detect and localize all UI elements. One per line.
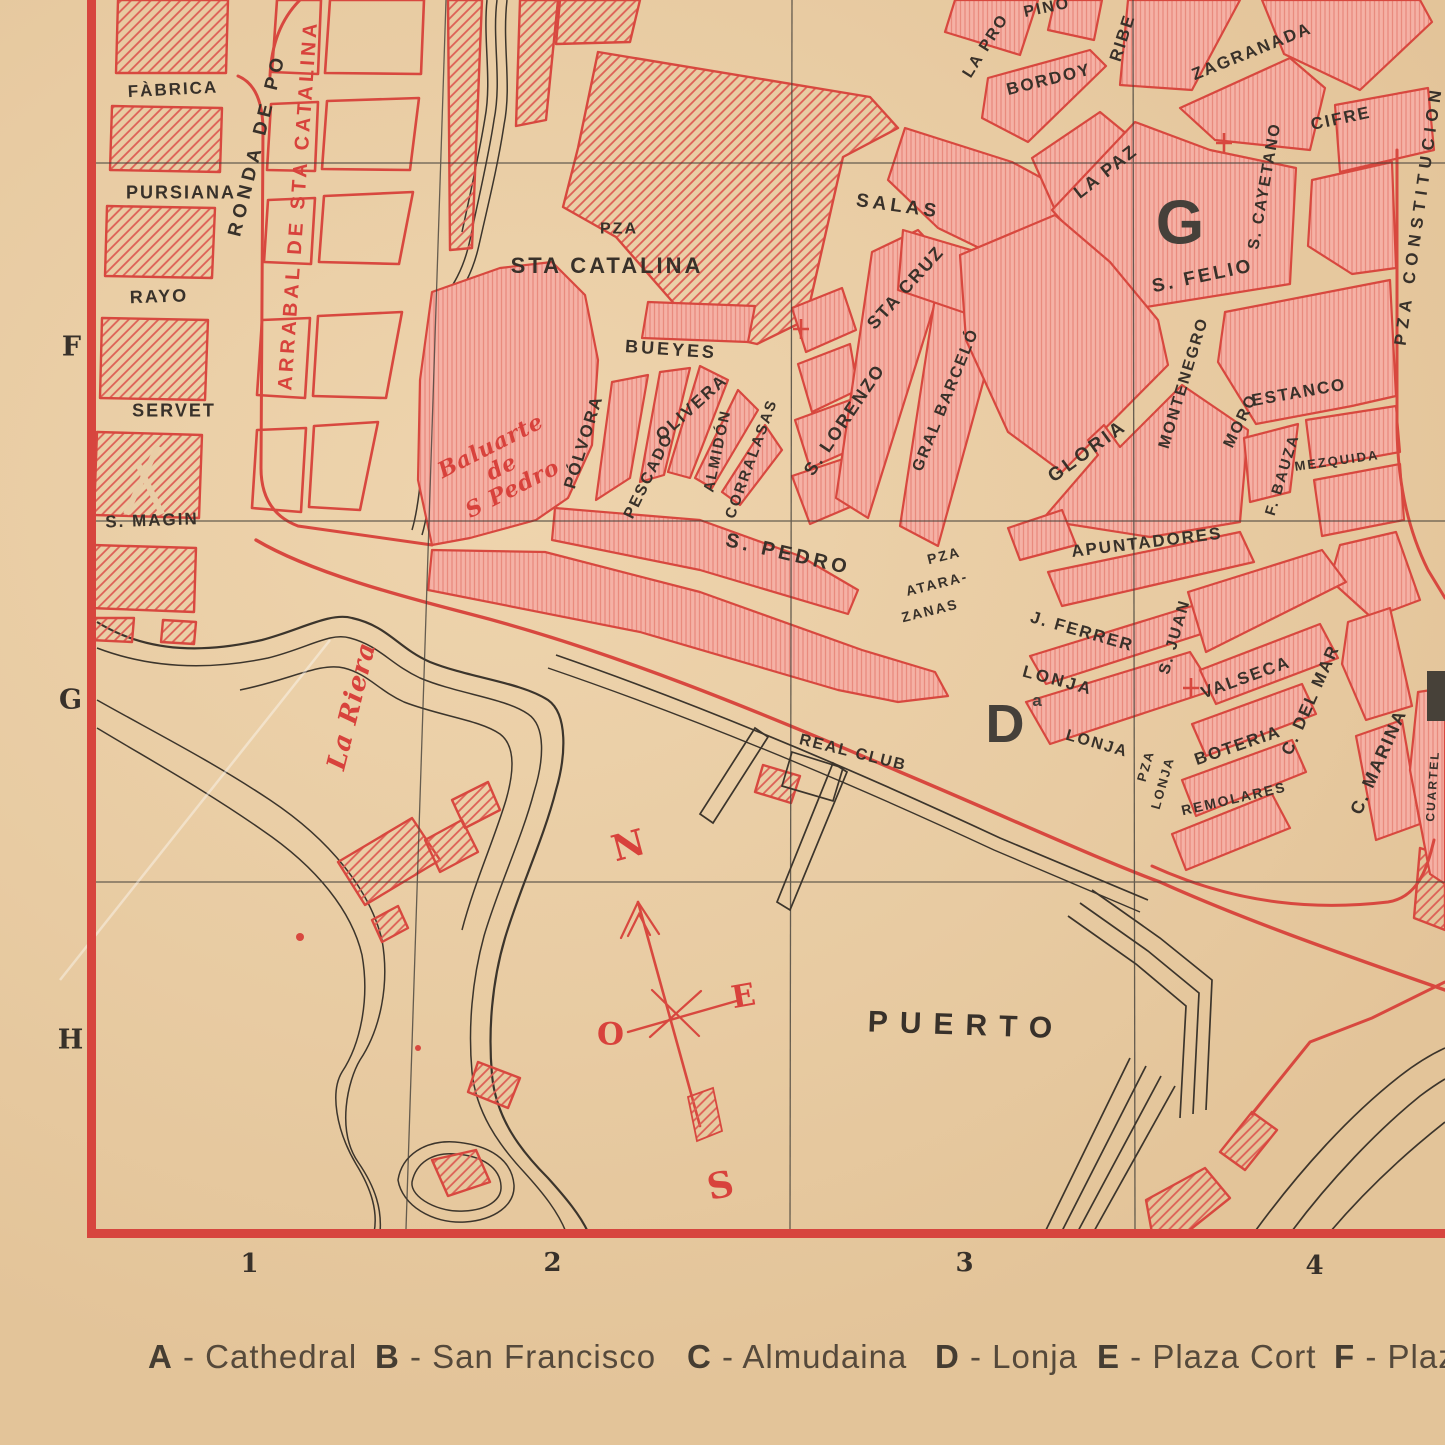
legend-row: A - CathedralB - San FranciscoC - Almuda…	[0, 1338, 1445, 1388]
compass-rose	[621, 902, 740, 1141]
legend-item-b: B - San Francisco	[375, 1338, 656, 1376]
map-canvas: FÀBRICAPURSIANARAYOSERVETS. MAGINRONDA D…	[0, 0, 1445, 1445]
map-artwork	[0, 0, 1445, 1445]
partial-letter-right-edge	[1427, 671, 1445, 721]
legend-key: A	[148, 1338, 173, 1375]
legend-key: C	[687, 1338, 712, 1375]
legend-key: F	[1334, 1338, 1355, 1375]
legend-item-a: A - Cathedral	[148, 1338, 357, 1376]
legend-item-e: E - Plaza Cort	[1097, 1338, 1316, 1376]
legend-key: D	[935, 1338, 960, 1375]
legend-key: B	[375, 1338, 400, 1375]
legend-item-d: D - Lonja	[935, 1338, 1078, 1376]
legend-item-f: F - Plaz	[1334, 1338, 1445, 1376]
legend-key: E	[1097, 1338, 1120, 1375]
arrabal-blocks-layer	[252, 0, 424, 512]
city-blocks-layer	[418, 0, 1445, 884]
river-lagoon-layer	[97, 0, 588, 1233]
legend-item-c: C - Almudaina	[687, 1338, 907, 1376]
